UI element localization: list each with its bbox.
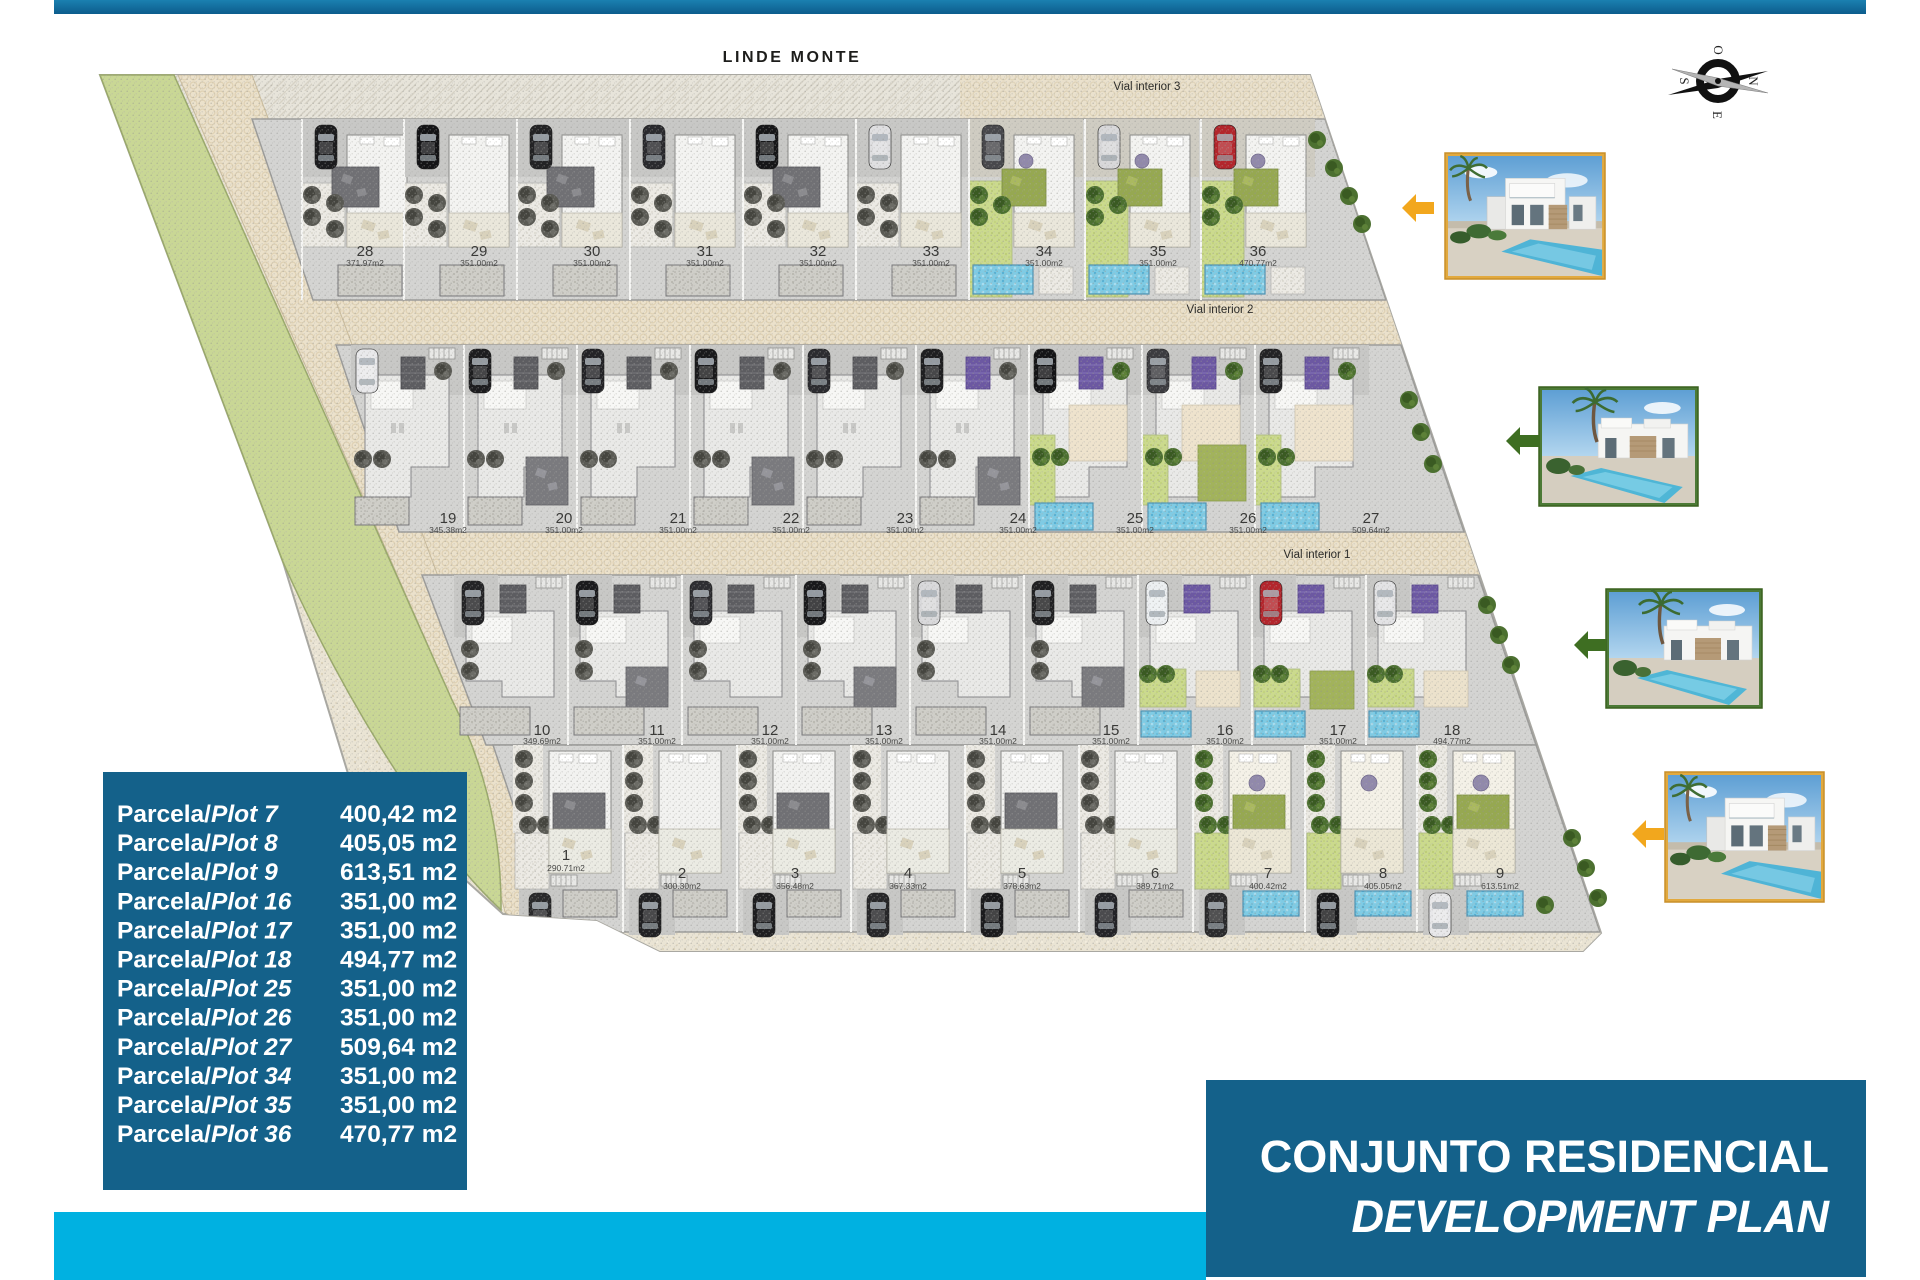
svg-text:351.00m2: 351.00m2	[1229, 525, 1267, 535]
svg-text:351.00m2: 351.00m2	[886, 525, 924, 535]
svg-text:351.00m2: 351.00m2	[999, 525, 1037, 535]
svg-text:400,42 m2: 400,42 m2	[340, 801, 457, 828]
svg-text:345.38m2: 345.38m2	[429, 525, 467, 535]
svg-text:351,00 m2: 351,00 m2	[340, 1063, 457, 1090]
svg-text:4: 4	[904, 865, 912, 882]
svg-text:356.48m2: 356.48m2	[776, 881, 814, 891]
svg-text:367.33m2: 367.33m2	[889, 881, 927, 891]
svg-text:351.00m2: 351.00m2	[1319, 736, 1357, 746]
svg-text:378.63m2: 378.63m2	[1003, 881, 1041, 891]
svg-text:O: O	[1711, 45, 1726, 54]
svg-text:N: N	[1746, 76, 1761, 86]
svg-text:Parcela/Plot 18: Parcela/Plot 18	[117, 947, 292, 974]
svg-text:2: 2	[678, 865, 686, 882]
svg-text:351,00 m2: 351,00 m2	[340, 1092, 457, 1119]
svg-text:5: 5	[1018, 865, 1026, 882]
svg-text:Parcela/Plot 7: Parcela/Plot 7	[117, 801, 279, 828]
svg-text:470,77 m2: 470,77 m2	[340, 1121, 457, 1148]
svg-text:349.69m2: 349.69m2	[523, 736, 561, 746]
svg-text:351.00m2: 351.00m2	[1092, 736, 1130, 746]
svg-text:S: S	[1677, 77, 1692, 84]
svg-text:351.00m2: 351.00m2	[799, 258, 837, 268]
svg-text:1: 1	[562, 847, 570, 864]
svg-text:CONJUNTO RESIDENCIAL: CONJUNTO RESIDENCIAL	[1260, 1131, 1829, 1182]
svg-text:300.30m2: 300.30m2	[663, 881, 701, 891]
svg-text:351,00 m2: 351,00 m2	[340, 1005, 457, 1032]
svg-text:Vial interior 3: Vial interior 3	[1114, 81, 1181, 93]
svg-text:494,77 m2: 494,77 m2	[340, 947, 457, 974]
svg-text:351.00m2: 351.00m2	[545, 525, 583, 535]
svg-text:Parcela/Plot 35: Parcela/Plot 35	[117, 1092, 292, 1119]
svg-text:351,00 m2: 351,00 m2	[340, 888, 457, 915]
svg-text:LINDE MONTE: LINDE MONTE	[723, 49, 862, 66]
svg-text:Parcela/Plot 26: Parcela/Plot 26	[117, 1005, 292, 1032]
svg-text:400.42m2: 400.42m2	[1249, 881, 1287, 891]
svg-text:351.00m2: 351.00m2	[1139, 258, 1177, 268]
svg-text:Parcela/Plot 27: Parcela/Plot 27	[117, 1034, 293, 1061]
svg-text:351.00m2: 351.00m2	[865, 736, 903, 746]
svg-text:613,51 m2: 613,51 m2	[340, 859, 457, 886]
svg-text:6: 6	[1151, 865, 1159, 882]
svg-text:Parcela/Plot 17: Parcela/Plot 17	[117, 917, 293, 944]
svg-text:Vial interior 2: Vial interior 2	[1187, 304, 1254, 316]
svg-text:351.00m2: 351.00m2	[460, 258, 498, 268]
svg-text:371.97m2: 371.97m2	[346, 258, 384, 268]
svg-text:E: E	[1710, 111, 1725, 119]
svg-text:494.77m2: 494.77m2	[1433, 736, 1471, 746]
svg-text:509.64m2: 509.64m2	[1352, 525, 1390, 535]
svg-text:470.77m2: 470.77m2	[1239, 258, 1277, 268]
svg-text:351.00m2: 351.00m2	[1116, 525, 1154, 535]
svg-text:3: 3	[791, 865, 799, 882]
svg-text:351.00m2: 351.00m2	[638, 736, 676, 746]
svg-text:351.00m2: 351.00m2	[772, 525, 810, 535]
svg-text:Parcela/Plot 9: Parcela/Plot 9	[117, 859, 278, 886]
svg-text:7: 7	[1264, 865, 1272, 882]
svg-text:351.00m2: 351.00m2	[912, 258, 950, 268]
svg-text:351,00 m2: 351,00 m2	[340, 917, 457, 944]
svg-text:Parcela/Plot 34: Parcela/Plot 34	[117, 1063, 292, 1090]
svg-text:Vial interior 1: Vial interior 1	[1284, 549, 1351, 561]
svg-text:8: 8	[1379, 865, 1387, 882]
svg-text:Parcela/Plot 16: Parcela/Plot 16	[117, 888, 292, 915]
svg-text:290.71m2: 290.71m2	[547, 863, 585, 873]
svg-text:DEVELOPMENT PLAN: DEVELOPMENT PLAN	[1351, 1191, 1830, 1242]
svg-text:509,64 m2: 509,64 m2	[340, 1034, 457, 1061]
svg-text:351.00m2: 351.00m2	[979, 736, 1017, 746]
svg-text:389.71m2: 389.71m2	[1136, 881, 1174, 891]
svg-text:405.05m2: 405.05m2	[1364, 881, 1402, 891]
svg-text:351.00m2: 351.00m2	[1206, 736, 1244, 746]
svg-text:351.00m2: 351.00m2	[686, 258, 724, 268]
svg-text:Parcela/Plot 36: Parcela/Plot 36	[117, 1121, 292, 1148]
svg-text:Parcela/Plot 25: Parcela/Plot 25	[117, 976, 292, 1003]
svg-text:351,00 m2: 351,00 m2	[340, 976, 457, 1003]
svg-text:Parcela/Plot 8: Parcela/Plot 8	[117, 830, 278, 857]
svg-text:351.00m2: 351.00m2	[659, 525, 697, 535]
svg-text:351.00m2: 351.00m2	[1025, 258, 1063, 268]
svg-text:405,05 m2: 405,05 m2	[340, 830, 457, 857]
svg-text:351.00m2: 351.00m2	[573, 258, 611, 268]
svg-text:351.00m2: 351.00m2	[751, 736, 789, 746]
svg-text:9: 9	[1496, 865, 1504, 882]
svg-text:613.51m2: 613.51m2	[1481, 881, 1519, 891]
